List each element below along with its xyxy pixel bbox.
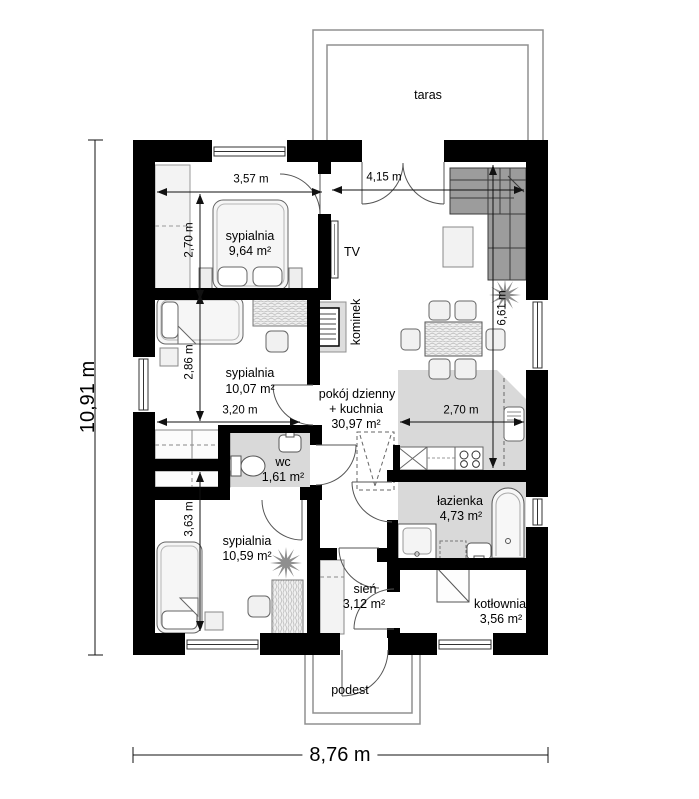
- dim-bedroom1-width: 3,57 m: [233, 174, 268, 186]
- porch-label: podest: [331, 684, 369, 697]
- cooktop: [455, 447, 483, 470]
- kitchen-sink: [504, 407, 524, 441]
- room-label-wc-area: 1,61 m²: [262, 471, 304, 484]
- fireplace-label: kominek: [350, 299, 363, 346]
- tv-label: TV: [344, 246, 360, 259]
- chair-3: [248, 596, 270, 617]
- room-label-bathroom-name: łazienka: [437, 495, 483, 508]
- door-bedroom2: [273, 385, 313, 425]
- room-label-bedroom3-name: sypialnia: [223, 535, 272, 548]
- boiler: [437, 568, 469, 602]
- plant-icon: [270, 547, 302, 579]
- hall-wardrobe: [320, 560, 344, 634]
- dim-bedroom2-width: 3,20 m: [222, 405, 257, 417]
- room-label-hall-area: 3,12 m²: [343, 598, 385, 611]
- desk-2: [253, 296, 308, 326]
- dim-bedroom2-depth: 2,86 m: [184, 344, 196, 379]
- room-label-bedroom3-area: 10,59 m²: [222, 550, 271, 563]
- room-label-boiler-name: kotłownia: [474, 598, 526, 611]
- window-bedroom2: [139, 359, 148, 410]
- room-label-wc-name: wc: [275, 456, 290, 469]
- room-label-bedroom2-area: 10,07 m²: [225, 383, 274, 396]
- room-label-living-name: pokój dzienny: [319, 388, 395, 401]
- tv-set: [331, 221, 338, 278]
- room-label-bedroom2-name: sypialnia: [226, 367, 275, 380]
- dim-kitchen-width: 2,70 m: [443, 405, 478, 417]
- dim-bedroom1-depth: 2,70 m: [184, 222, 196, 257]
- room-label-bedroom1-name: sypialnia: [226, 230, 275, 243]
- wc-sink: [279, 432, 301, 452]
- dim-overall-height: 10,91 m: [78, 361, 98, 433]
- window-kitchen: [533, 302, 542, 368]
- window-bathroom: [533, 499, 542, 525]
- terrace-label: taras: [414, 89, 442, 102]
- nightstand-3: [205, 612, 223, 630]
- bathtub: [492, 488, 524, 558]
- door-bathroom: [352, 482, 392, 522]
- desk-3: [272, 580, 303, 634]
- room-label-hall-name: sień: [354, 583, 377, 596]
- washing-machine: [398, 524, 436, 560]
- room-label-living-name2: + kuchnia: [329, 403, 383, 416]
- dim-living-top-width: 4,15 m: [366, 172, 401, 184]
- window-bedroom3: [187, 640, 258, 649]
- dim-overall-width: 8,76 m: [302, 745, 377, 765]
- toilet: [231, 456, 265, 476]
- room-label-bedroom1-area: 9,64 m²: [229, 245, 271, 258]
- floor-plan-canvas: taras podest 3,57 m 4,15 m 2,70 m 2,86 m…: [0, 0, 699, 799]
- chair-2: [266, 331, 288, 352]
- room-label-boiler-area: 3,56 m²: [480, 613, 522, 626]
- door-wc: [316, 445, 356, 485]
- side-table: [160, 348, 178, 366]
- window-boiler: [439, 640, 491, 649]
- dining-set: [401, 301, 505, 379]
- coffee-table: [443, 227, 473, 267]
- window-bedroom1: [214, 147, 285, 156]
- single-bed-3: [157, 542, 202, 633]
- room-label-bathroom-area: 4,73 m²: [440, 510, 482, 523]
- room-label-living-area: 30,97 m²: [331, 418, 380, 431]
- dim-bedroom3-depth: 3,63 m: [184, 501, 196, 536]
- dim-living-depth: 6,61 m: [497, 290, 509, 325]
